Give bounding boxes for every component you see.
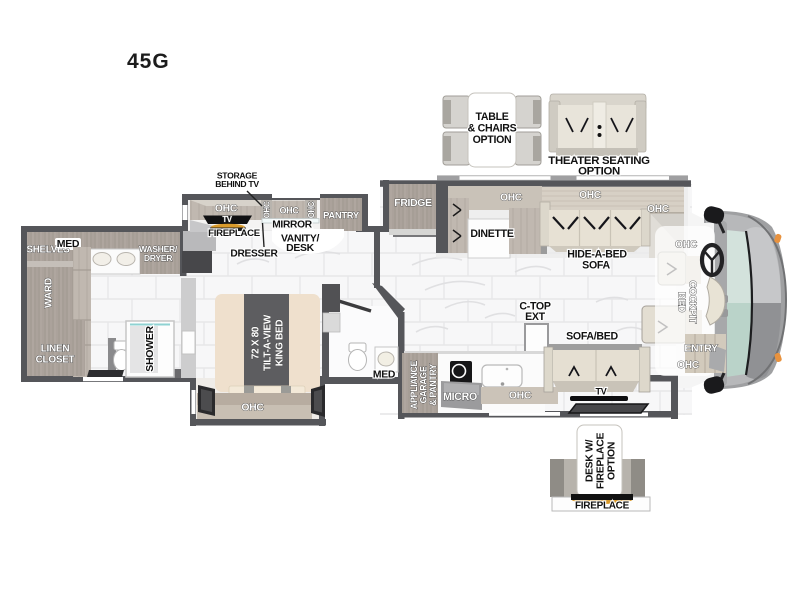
svg-text:OHC: OHC (509, 391, 532, 402)
svg-text:FRIDGE: FRIDGE (394, 198, 432, 209)
svg-text:SOFA: SOFA (582, 260, 610, 272)
svg-text:OPTION: OPTION (473, 134, 512, 146)
svg-text:WARD: WARD (44, 278, 55, 308)
svg-text:45G: 45G (127, 50, 170, 73)
svg-text:MIRROR: MIRROR (272, 220, 312, 231)
svg-text:FIREPLACE: FIREPLACE (596, 433, 607, 490)
svg-text:BEHIND TV: BEHIND TV (215, 179, 259, 189)
svg-text:& PANTRY: & PANTRY (428, 364, 438, 406)
svg-text:TV: TV (596, 387, 607, 397)
svg-text:CLOSET: CLOSET (36, 355, 75, 366)
svg-text:KING BED: KING BED (275, 320, 286, 367)
svg-text:OHC: OHC (675, 240, 698, 251)
svg-text:EXT: EXT (525, 311, 546, 323)
svg-text:TV: TV (222, 215, 232, 224)
svg-text:DRYER: DRYER (144, 253, 173, 263)
svg-text:OHC: OHC (677, 360, 700, 371)
svg-text:OHC: OHC (215, 204, 238, 215)
svg-text:GARAGE: GARAGE (419, 366, 429, 403)
svg-text:DRESSER: DRESSER (230, 249, 278, 260)
svg-text:DESK: DESK (286, 243, 314, 254)
svg-text:& CHAIRS: & CHAIRS (468, 123, 517, 135)
svg-text:MED: MED (373, 370, 396, 381)
svg-text:OPTION: OPTION (607, 442, 618, 480)
svg-text:SHOWER: SHOWER (144, 326, 156, 372)
svg-text:TILT-A-VIEW: TILT-A-VIEW (263, 314, 274, 371)
svg-text:OHC: OHC (241, 403, 264, 414)
svg-text:FIREPLACE: FIREPLACE (575, 501, 630, 512)
svg-text:OHC: OHC (579, 190, 602, 201)
svg-text:ENTRY: ENTRY (684, 344, 718, 355)
svg-text:OHC: OHC (307, 201, 316, 218)
svg-text:LINEN: LINEN (41, 344, 70, 355)
svg-text:PANTRY: PANTRY (323, 210, 360, 221)
svg-text:DESK W/: DESK W/ (585, 439, 596, 482)
svg-text:BED: BED (676, 292, 687, 312)
svg-text:APPLIANCE: APPLIANCE (409, 361, 419, 410)
svg-text:72 X 80: 72 X 80 (251, 326, 262, 359)
svg-text:FIREPLACE: FIREPLACE (208, 228, 261, 239)
svg-text:OHC: OHC (647, 204, 670, 215)
svg-text:MICRO: MICRO (443, 391, 477, 403)
svg-text:OHC: OHC (279, 206, 299, 216)
svg-text:OHC: OHC (262, 201, 271, 218)
svg-text:DINETTE: DINETTE (470, 228, 513, 240)
svg-text:COCKPIT: COCKPIT (687, 281, 698, 324)
svg-text:SOFA/BED: SOFA/BED (566, 331, 618, 343)
svg-text:TABLE: TABLE (475, 111, 508, 123)
svg-text:OHC: OHC (500, 193, 523, 204)
svg-text:OPTION: OPTION (578, 166, 620, 178)
